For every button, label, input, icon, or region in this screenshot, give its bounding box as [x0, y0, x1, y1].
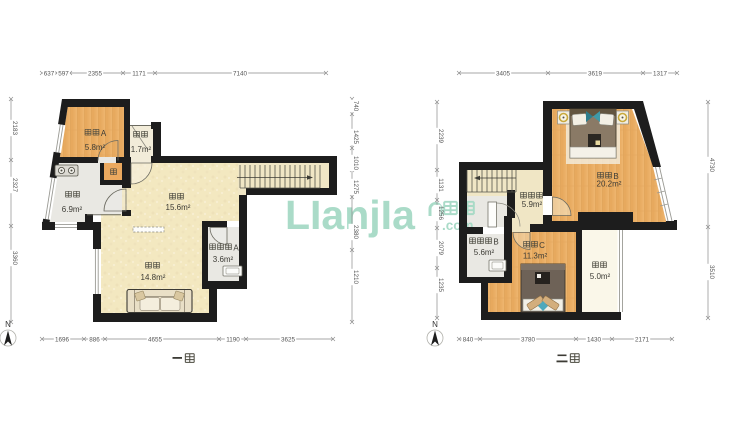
- svg-text:B: B: [493, 238, 498, 247]
- svg-text:1235: 1235: [437, 278, 444, 293]
- svg-text:1131: 1131: [437, 178, 444, 192]
- svg-text:N: N: [432, 320, 438, 329]
- svg-text:1256: 1256: [437, 206, 444, 221]
- svg-text:3619: 3619: [588, 70, 603, 77]
- svg-text:1317: 1317: [653, 70, 668, 77]
- svg-text:637: 637: [44, 70, 55, 77]
- svg-text:4730: 4730: [708, 158, 715, 173]
- svg-text:5.0m²: 5.0m²: [590, 272, 611, 281]
- svg-text:1210: 1210: [352, 270, 359, 285]
- svg-text:1430: 1430: [587, 336, 602, 343]
- svg-text:5.8m²: 5.8m²: [85, 143, 106, 152]
- svg-text:1190: 1190: [226, 336, 240, 343]
- svg-text:3625: 3625: [281, 336, 296, 343]
- svg-text:C: C: [539, 241, 545, 250]
- svg-text:3405: 3405: [496, 70, 511, 77]
- svg-text:A: A: [233, 244, 239, 253]
- svg-text:5.6m²: 5.6m²: [474, 248, 495, 257]
- svg-text:3360: 3360: [11, 251, 18, 266]
- svg-text:20.2m²: 20.2m²: [597, 180, 622, 189]
- svg-text:2183: 2183: [11, 121, 18, 136]
- svg-text:2171: 2171: [635, 336, 650, 343]
- svg-text:740: 740: [352, 101, 359, 112]
- svg-text:11.3m²: 11.3m²: [523, 252, 548, 261]
- svg-text:597: 597: [58, 70, 69, 77]
- svg-text:3.6m²: 3.6m²: [213, 255, 234, 264]
- svg-text:4655: 4655: [148, 336, 163, 343]
- svg-text:6.9m²: 6.9m²: [62, 205, 83, 214]
- svg-text:1171: 1171: [132, 70, 146, 77]
- svg-text:1.7m²: 1.7m²: [131, 145, 152, 154]
- svg-text:14.8m²: 14.8m²: [141, 273, 166, 282]
- svg-text:840: 840: [463, 336, 474, 343]
- svg-text:886: 886: [89, 336, 100, 343]
- svg-text:N: N: [5, 320, 11, 329]
- svg-text:15.6m²: 15.6m²: [166, 203, 191, 212]
- svg-text:7140: 7140: [233, 70, 248, 77]
- svg-text:1696: 1696: [55, 336, 70, 343]
- svg-text:2380: 2380: [352, 225, 359, 240]
- svg-text:2239: 2239: [437, 129, 444, 144]
- svg-text:2327: 2327: [11, 178, 18, 193]
- svg-text:A: A: [101, 129, 107, 138]
- svg-text:3780: 3780: [521, 336, 536, 343]
- svg-text:5.9m²: 5.9m²: [522, 200, 543, 209]
- svg-text:1010: 1010: [352, 156, 359, 171]
- svg-text:1275: 1275: [352, 180, 359, 195]
- svg-text:1425: 1425: [352, 130, 359, 145]
- svg-text:3510: 3510: [708, 265, 715, 280]
- svg-text:2079: 2079: [437, 241, 444, 256]
- svg-text:2355: 2355: [88, 70, 103, 77]
